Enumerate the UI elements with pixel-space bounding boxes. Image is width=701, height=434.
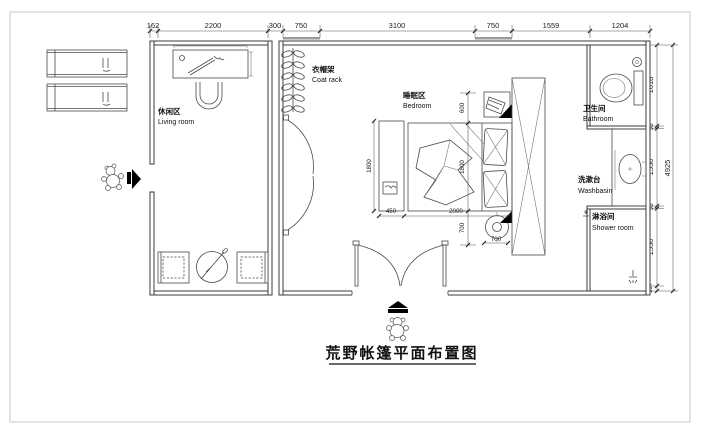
- dim-top-3100: 3100: [389, 21, 406, 30]
- shower-room: 淋浴间 Shower room: [583, 210, 637, 283]
- toilet: [600, 58, 643, 106]
- pillow-2: [483, 170, 508, 207]
- dim-top-750a: 750: [295, 21, 308, 30]
- eave-bar-right: [475, 37, 512, 40]
- nightstand: [484, 92, 512, 118]
- dim-top-1559: 1559: [543, 21, 560, 30]
- desk: [173, 44, 253, 78]
- pillow-1: [483, 128, 508, 165]
- bathroom-partition-walls: [587, 45, 646, 291]
- butterfly-doors: [284, 115, 314, 235]
- floor-plan-drawing: 162 2200 300 750 3100 750 1559 1204 1618…: [0, 0, 701, 434]
- dim-col-700: 700: [491, 236, 502, 243]
- lounger-1: [47, 50, 127, 77]
- armchair-left: [158, 252, 189, 283]
- bedroom: 睡眠区 Bedroom: [353, 78, 545, 286]
- dim-bed-2000: 2000: [449, 208, 463, 215]
- outdoor-loungers: [47, 50, 127, 111]
- bear-figure-icon: [102, 164, 124, 191]
- eave-bar-left: [283, 37, 320, 40]
- toilet-paper-icon: [633, 58, 642, 67]
- washbasin-label-zh: 洗漱台: [578, 174, 601, 184]
- washbasin-area: 洗漱台 Washbasin: [578, 129, 646, 206]
- dim-top-2200: 2200: [205, 21, 222, 30]
- entry-arrow-right-icon: [127, 169, 141, 189]
- top-dimension-chain: 162 2200 300 750 3100 750 1559 1204: [147, 21, 652, 38]
- coat-rack-label-en: Coat rack: [312, 77, 342, 84]
- bathroom: 卫生间 Bathroom: [583, 58, 643, 124]
- bathroom-label-en: Bathroom: [583, 116, 614, 123]
- shower-label-zh: 淋浴间: [592, 211, 615, 221]
- bedroom-label-zh: 睡眠区: [403, 90, 426, 100]
- title-text: 荒野帐篷平面布置图: [325, 344, 478, 362]
- shower-label-en: Shower room: [592, 225, 634, 232]
- coat-rack-label-zh: 衣帽架: [312, 64, 335, 74]
- lounger-2: [47, 84, 127, 111]
- french-doors: [353, 241, 448, 286]
- living-room: 休闲区 Living room: [157, 44, 268, 283]
- bear-figure-icon: [387, 318, 409, 341]
- round-table: [197, 248, 229, 283]
- dim-bed-600: 600: [459, 102, 466, 113]
- living-room-label-zh: 休闲区: [157, 106, 181, 116]
- dim-top-300: 300: [269, 21, 282, 30]
- floor-plan-canvas: 162 2200 300 750 3100 750 1559 1204 1618…: [0, 0, 701, 434]
- faucet-icon: [628, 162, 646, 176]
- bathroom-label-zh: 卫生间: [583, 103, 606, 113]
- dim-bench-450: 450: [386, 208, 397, 215]
- drawing-title: 荒野帐篷平面布置图: [325, 344, 478, 364]
- desk-chair: [196, 82, 222, 109]
- bed-bench: [379, 121, 404, 211]
- right-dimension-chain: 1618 50 1550 50 1550 107 4925: [646, 43, 678, 293]
- bed-dimensions: 600 1800 700 450 2000 700 1800: [366, 91, 510, 247]
- dim-bed-1800: 1800: [459, 160, 466, 174]
- coat-rack: 衣帽架 Coat rack: [281, 48, 343, 113]
- dim-bench-1800: 1800: [366, 159, 373, 173]
- bedroom-label-en: Bedroom: [403, 103, 432, 110]
- left-entrance: [102, 164, 142, 191]
- dim-top-162: 162: [147, 21, 160, 30]
- wardrobe: [512, 78, 545, 255]
- swing-arrow-icon: [500, 211, 512, 223]
- shower-fixture-icon: [629, 270, 637, 283]
- living-room-label-en: Living room: [158, 119, 194, 126]
- bottom-entrance: [387, 301, 409, 341]
- dim-top-750b: 750: [487, 21, 500, 30]
- washbasin-label-en: Washbasin: [578, 188, 612, 195]
- entry-arrow-up-icon: [388, 301, 408, 313]
- dim-right-total-4925: 4925: [663, 160, 672, 177]
- dim-top-1204: 1204: [612, 21, 629, 30]
- armchair-right: [237, 252, 268, 283]
- dim-bed-700v: 700: [459, 222, 466, 233]
